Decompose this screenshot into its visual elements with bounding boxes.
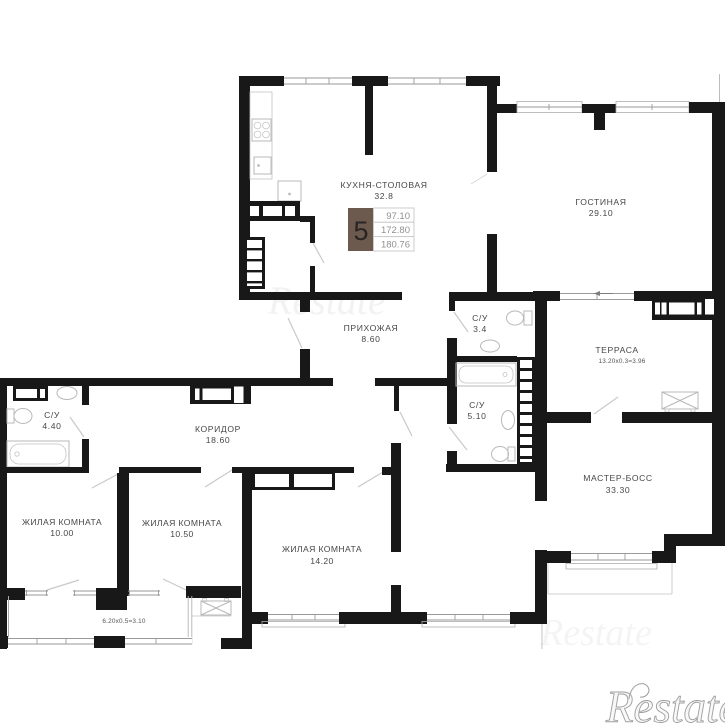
- svg-text:13.20х0.3=3.96: 13.20х0.3=3.96: [598, 358, 645, 365]
- svg-text:Restate: Restate: [267, 278, 386, 323]
- svg-text:6.20х0.5=3.10: 6.20х0.5=3.10: [102, 618, 146, 625]
- svg-text:10.50: 10.50: [170, 529, 194, 539]
- svg-text:172.80: 172.80: [381, 225, 410, 236]
- svg-text:97.10: 97.10: [386, 211, 410, 222]
- svg-text:ЖИЛАЯ КОМНАТА: ЖИЛАЯ КОМНАТА: [282, 544, 362, 554]
- svg-text:14.20: 14.20: [310, 556, 334, 566]
- svg-text:10.00: 10.00: [50, 528, 74, 538]
- svg-text:ТЕРРАСА: ТЕРРАСА: [595, 345, 638, 355]
- svg-text:32.8: 32.8: [374, 191, 393, 201]
- svg-text:С/У: С/У: [469, 400, 485, 410]
- svg-text:ЖИЛАЯ КОМНАТА: ЖИЛАЯ КОМНАТА: [142, 518, 222, 528]
- svg-text:5.10: 5.10: [467, 411, 486, 421]
- svg-text:4.40: 4.40: [42, 421, 61, 431]
- svg-text:33.30: 33.30: [606, 485, 631, 495]
- svg-text:ЖИЛАЯ КОМНАТА: ЖИЛАЯ КОМНАТА: [22, 517, 102, 527]
- svg-text:3.4: 3.4: [473, 324, 487, 334]
- svg-text:ГОСТИНАЯ: ГОСТИНАЯ: [575, 197, 626, 207]
- svg-text:С/У: С/У: [472, 313, 488, 323]
- svg-text:Restate: Restate: [605, 682, 725, 725]
- svg-text:18.60: 18.60: [206, 435, 231, 445]
- svg-text:КОРИДОР: КОРИДОР: [195, 424, 241, 434]
- svg-text:ПРИХОЖАЯ: ПРИХОЖАЯ: [344, 323, 399, 333]
- svg-text:5: 5: [353, 216, 368, 246]
- svg-text:8.60: 8.60: [361, 334, 380, 344]
- svg-text:180.76: 180.76: [381, 239, 410, 250]
- svg-text:Restate: Restate: [539, 612, 652, 654]
- svg-text:КУХНЯ-СТОЛОВАЯ: КУХНЯ-СТОЛОВАЯ: [340, 180, 427, 190]
- svg-text:С/У: С/У: [44, 410, 60, 420]
- svg-text:МАСТЕР-БОСС: МАСТЕР-БОСС: [583, 473, 652, 483]
- svg-text:29.10: 29.10: [589, 208, 614, 218]
